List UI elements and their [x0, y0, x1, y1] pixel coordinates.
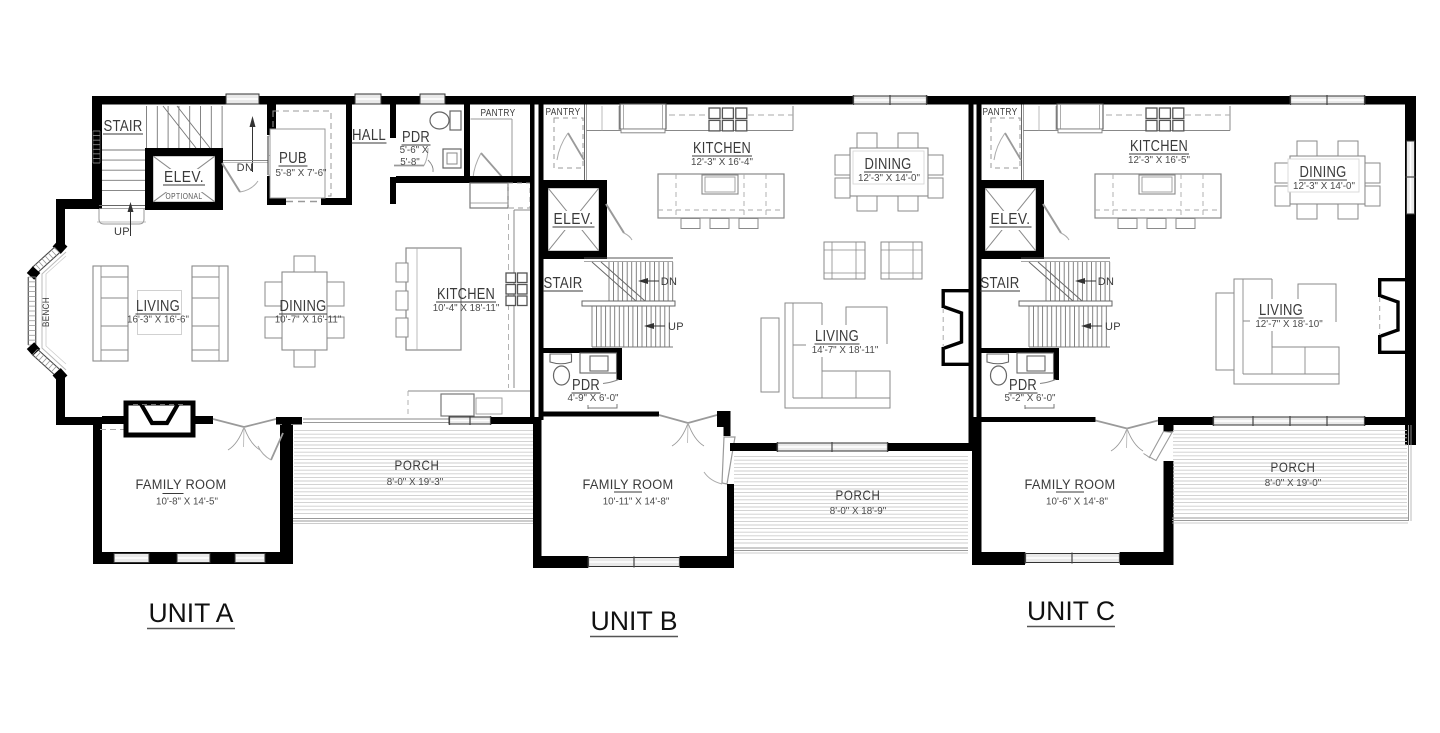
svg-text:LIVING: LIVING [815, 328, 859, 345]
svg-text:STAIR: STAIR [544, 275, 583, 292]
svg-text:PORCH: PORCH [1271, 459, 1316, 475]
svg-text:4'-9" X 6'-0": 4'-9" X 6'-0" [568, 393, 620, 404]
svg-text:PORCH: PORCH [836, 487, 881, 503]
svg-text:UP: UP [114, 226, 130, 238]
svg-text:PDR: PDR [1009, 377, 1037, 394]
svg-text:14'-7" X 18'-11": 14'-7" X 18'-11" [812, 345, 879, 356]
svg-text:ELEV.: ELEV. [164, 169, 204, 186]
svg-text:ELEV.: ELEV. [991, 211, 1031, 228]
svg-text:BENCH: BENCH [41, 297, 52, 327]
svg-text:10'-6" X 14'-8": 10'-6" X 14'-8" [1046, 497, 1108, 508]
svg-text:PDR: PDR [402, 129, 430, 146]
svg-text:10'-11" X 14'-8": 10'-11" X 14'-8" [603, 497, 670, 508]
svg-text:16'-3" X 16'-6": 16'-3" X 16'-6" [127, 315, 189, 326]
svg-text:KITCHEN: KITCHEN [437, 286, 495, 303]
svg-text:STAIR: STAIR [981, 275, 1020, 292]
svg-text:LIVING: LIVING [1259, 302, 1303, 319]
svg-text:PANTRY: PANTRY [983, 107, 1018, 118]
svg-text:10'-8" X 14'-5": 10'-8" X 14'-5" [156, 497, 218, 508]
svg-text:DINING: DINING [280, 298, 327, 315]
svg-text:PANTRY: PANTRY [481, 108, 516, 119]
svg-text:FAMILY ROOM: FAMILY ROOM [136, 477, 227, 492]
svg-text:UNIT C: UNIT C [1027, 596, 1115, 626]
svg-text:PANTRY: PANTRY [546, 107, 581, 118]
svg-text:FAMILY ROOM: FAMILY ROOM [583, 477, 674, 492]
svg-text:UP: UP [1105, 321, 1121, 333]
svg-text:5'-8": 5'-8" [400, 157, 420, 168]
svg-text:STAIR: STAIR [104, 118, 143, 135]
svg-text:UP: UP [668, 321, 684, 333]
svg-text:8'-0" X 18'-9": 8'-0" X 18'-9" [830, 506, 887, 517]
svg-text:5'-2" X 6'-0": 5'-2" X 6'-0" [1005, 393, 1057, 404]
svg-text:PUB: PUB [279, 150, 307, 167]
svg-text:8'-0" X 19'-0": 8'-0" X 19'-0" [1265, 478, 1322, 489]
svg-text:12'-3" X 14'-0": 12'-3" X 14'-0" [858, 173, 920, 184]
svg-text:12'-3" X 14'-0": 12'-3" X 14'-0" [1293, 181, 1355, 192]
svg-text:DINING: DINING [1300, 164, 1347, 181]
svg-text:UNIT A: UNIT A [149, 598, 234, 628]
svg-text:10'-7" X 16'-11": 10'-7" X 16'-11" [275, 315, 342, 326]
svg-text:8'-0" X 19'-3": 8'-0" X 19'-3" [387, 477, 444, 488]
svg-text:12'-3" X 16'-4": 12'-3" X 16'-4" [691, 157, 753, 168]
svg-text:LIVING: LIVING [136, 298, 180, 315]
svg-text:10'-4" X 18'-11": 10'-4" X 18'-11" [433, 303, 500, 314]
svg-text:UNIT B: UNIT B [591, 606, 678, 636]
svg-text:DN: DN [1098, 276, 1115, 288]
svg-text:FAMILY ROOM: FAMILY ROOM [1025, 477, 1116, 492]
svg-text:12'-3" X 16'-5": 12'-3" X 16'-5" [1128, 155, 1190, 166]
svg-text:12'-7" X 18'-10": 12'-7" X 18'-10" [1255, 319, 1323, 330]
svg-text:5'-6" X: 5'-6" X [400, 145, 429, 156]
svg-text:PORCH: PORCH [395, 457, 440, 473]
svg-text:DN: DN [237, 162, 254, 174]
svg-text:KITCHEN: KITCHEN [1130, 138, 1188, 155]
svg-text:PDR: PDR [572, 377, 600, 394]
svg-text:ELEV.: ELEV. [554, 211, 594, 228]
svg-text:DINING: DINING [865, 156, 912, 173]
svg-text:KITCHEN: KITCHEN [693, 140, 751, 157]
svg-text:HALL: HALL [352, 127, 386, 144]
svg-text:DN: DN [661, 276, 678, 288]
svg-text:5'-8" X 7'-6": 5'-8" X 7'-6" [276, 168, 328, 179]
svg-text:OPTIONAL: OPTIONAL [166, 192, 203, 201]
